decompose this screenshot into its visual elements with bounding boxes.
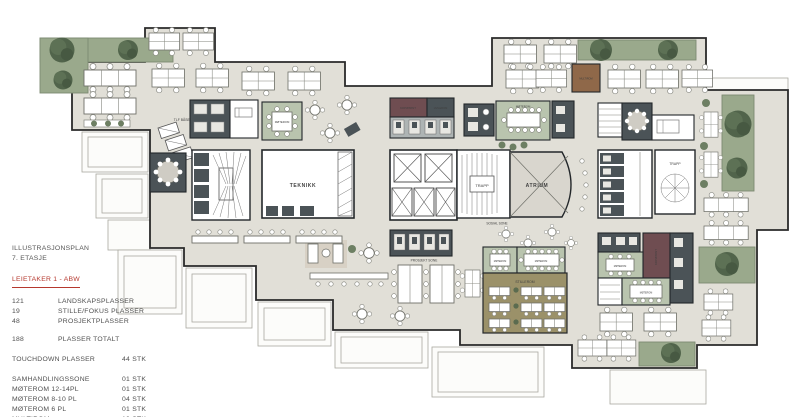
tree — [54, 71, 73, 90]
tree — [727, 158, 748, 179]
meeting-room-label: MØTEROM — [275, 120, 290, 124]
plan-title: ILLUSTRASJONSPLAN 7. ETASJE — [12, 244, 322, 264]
legend: ILLUSTRASJONSPLAN 7. ETASJE LEIETAKER 1 … — [12, 244, 322, 417]
meeting-room-south-small: MØTEROM — [483, 247, 517, 273]
capacity-label: LANDSKAPSPLASSER — [58, 297, 322, 307]
wc-block-north — [390, 117, 454, 138]
meeting-room-label: MØTEROM — [516, 105, 531, 109]
plan-title-line1: ILLUSTRASJONSPLAN — [12, 244, 322, 254]
copy-print-room-north: KOPI/PRINT — [390, 98, 427, 117]
room-value: 01 STK — [122, 405, 146, 415]
tlf-pair-north — [464, 104, 494, 136]
elevator-core — [390, 150, 457, 220]
total-row: 188 PLASSER TOTALT — [12, 335, 322, 345]
touchdown-row: TOUCHDOWN PLASSER 44 STK — [12, 355, 322, 365]
capacity-count: 48 — [12, 317, 58, 327]
hvilerom-north: HVILEROM — [427, 98, 454, 117]
room-count-row: MØTEROM 8-10 PL 04 STK — [12, 395, 322, 405]
touchdown-label: TOUCHDOWN PLASSER — [12, 355, 122, 365]
tree — [50, 38, 75, 63]
atrium-label: ATRIUM — [526, 183, 549, 189]
copy-print-label: KOPI/PRINT — [400, 106, 416, 110]
tree — [118, 40, 138, 60]
capacity-count: 19 — [12, 307, 58, 317]
desk-cluster — [84, 92, 136, 121]
room-count-list: SAMHANDLINGSSONE 01 STK MØTEROM 12-14PL … — [12, 375, 322, 417]
project-tables — [392, 265, 485, 303]
rest-room-east — [652, 115, 694, 140]
meeting-room-label: MØTEROM — [640, 292, 652, 295]
tree — [590, 39, 612, 61]
round-lounge-room — [150, 153, 186, 192]
tlf-row-east — [598, 150, 652, 218]
room-label: MØTEROM 8-10 PL — [12, 395, 122, 405]
stairs-center: TRAPP — [457, 150, 510, 218]
desk-cluster — [84, 64, 136, 93]
tree — [661, 343, 681, 363]
room-value: 04 STK — [122, 395, 146, 405]
room-count-row: MØTEROM 6 PL 01 STK — [12, 405, 322, 415]
trapp-label: TRAPP — [669, 162, 681, 166]
meeting-room-west: MØTEROM — [262, 102, 302, 140]
meeting-room-se-2: MØTEROM — [622, 278, 670, 305]
capacity-row: 19 STILLE/FOKUS PLASSER — [12, 307, 322, 317]
capacity-label: PROSJEKTPLASSER — [58, 317, 322, 327]
meeting-room-label: MØTEROM — [494, 260, 506, 263]
teknikk-label: TEKNIKK — [290, 183, 316, 189]
stairs-west — [192, 150, 250, 220]
meeting-room-label: MØTEROM — [614, 265, 626, 268]
multirom-block-west — [190, 100, 258, 138]
total-count: 188 — [12, 335, 58, 345]
wc-block-south — [390, 230, 452, 256]
touchdown-value: 44 STK — [122, 355, 146, 365]
room-label: MØTEROM 6 PL — [12, 405, 122, 415]
room-label: MØTEROM 12-14PL — [12, 385, 122, 395]
meeting-room-label: MØTEROM — [535, 260, 547, 263]
stillerom-label: STILLEROM — [515, 280, 534, 284]
desk-cluster — [704, 220, 748, 245]
meeting-room-south-large: MØTEROM — [517, 247, 565, 273]
capacity-list: 121 LANDSKAPSPLASSER 19 STILLE/FOKUS PLA… — [12, 297, 322, 328]
room-label: SAMHANDLINGSSONE — [12, 375, 122, 385]
shelf-room-east — [598, 103, 622, 137]
room-teknikk: TEKNIKK — [262, 150, 354, 218]
capacity-row: 48 PROSJEKTPLASSER — [12, 317, 322, 327]
desk-cluster — [704, 192, 748, 217]
stairs-east: TRAPP — [655, 150, 695, 214]
room-count-row: MØTEROM 12-14PL 01 STK — [12, 385, 322, 395]
room-value: 01 STK — [122, 375, 146, 385]
tree — [658, 40, 678, 60]
room-value: 01 STK — [122, 385, 146, 395]
sosial-sone-label: SOSIAL SONE — [486, 222, 507, 226]
copy-print-label: KOPI/PRINT — [654, 249, 658, 265]
room-count-row: SAMHANDLINGSSONE 01 STK — [12, 375, 322, 385]
dark-pair-north-east — [552, 101, 574, 138]
floor-plan-page: TLF BÅSER MØTEROM — [0, 0, 800, 417]
plan-title-line2: 7. ETASJE — [12, 254, 322, 264]
tenant-heading: LEIETAKER 1 - ABW — [12, 275, 80, 287]
tree — [715, 252, 739, 276]
capacity-label: STILLE/FOKUS PLASSER — [58, 307, 322, 317]
tree — [725, 111, 752, 138]
total-label: PLASSER TOTALT — [58, 335, 322, 345]
copy-print-room-south: KOPI/PRINT — [643, 233, 670, 278]
multirom-brown: MULTIROM — [572, 64, 600, 92]
multirom-label: MULTIROM — [579, 78, 592, 81]
round-meeting-east — [622, 103, 652, 140]
hvilerom-label: HVILEROM — [434, 106, 448, 110]
trapp-label: TRAPP — [475, 183, 489, 188]
prosjekt-sone-label: PROSJEKT SONE — [411, 259, 438, 263]
stillerom: STILLEROM — [483, 273, 567, 333]
meeting-room-se-1: MØTEROM — [598, 252, 643, 278]
meeting-room-north: MØTEROM — [496, 101, 550, 140]
capacity-row: 121 LANDSKAPSPLASSER — [12, 297, 322, 307]
capacity-count: 121 — [12, 297, 58, 307]
